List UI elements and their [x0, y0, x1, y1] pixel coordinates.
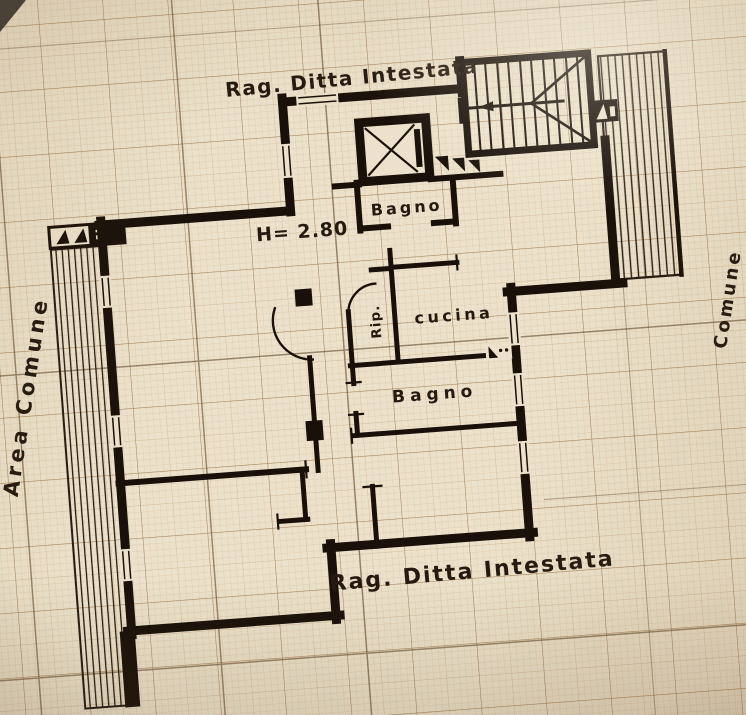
door-post — [295, 288, 313, 306]
bathroom-fixture — [485, 342, 512, 361]
floor-plan-scan: Rag. Ditta Intestata H= 2.80 Bagno cucin… — [0, 0, 746, 715]
room-label-storage: Rip. — [367, 304, 385, 339]
tilted-scan-group: Rag. Ditta Intestata H= 2.80 Bagno cucin… — [0, 0, 746, 715]
elevator-shaft — [354, 113, 435, 187]
floor-plan-drawing: Rag. Ditta Intestata H= 2.80 Bagno cucin… — [0, 0, 746, 715]
stair-entry-door — [458, 97, 470, 124]
door-post — [305, 420, 323, 441]
